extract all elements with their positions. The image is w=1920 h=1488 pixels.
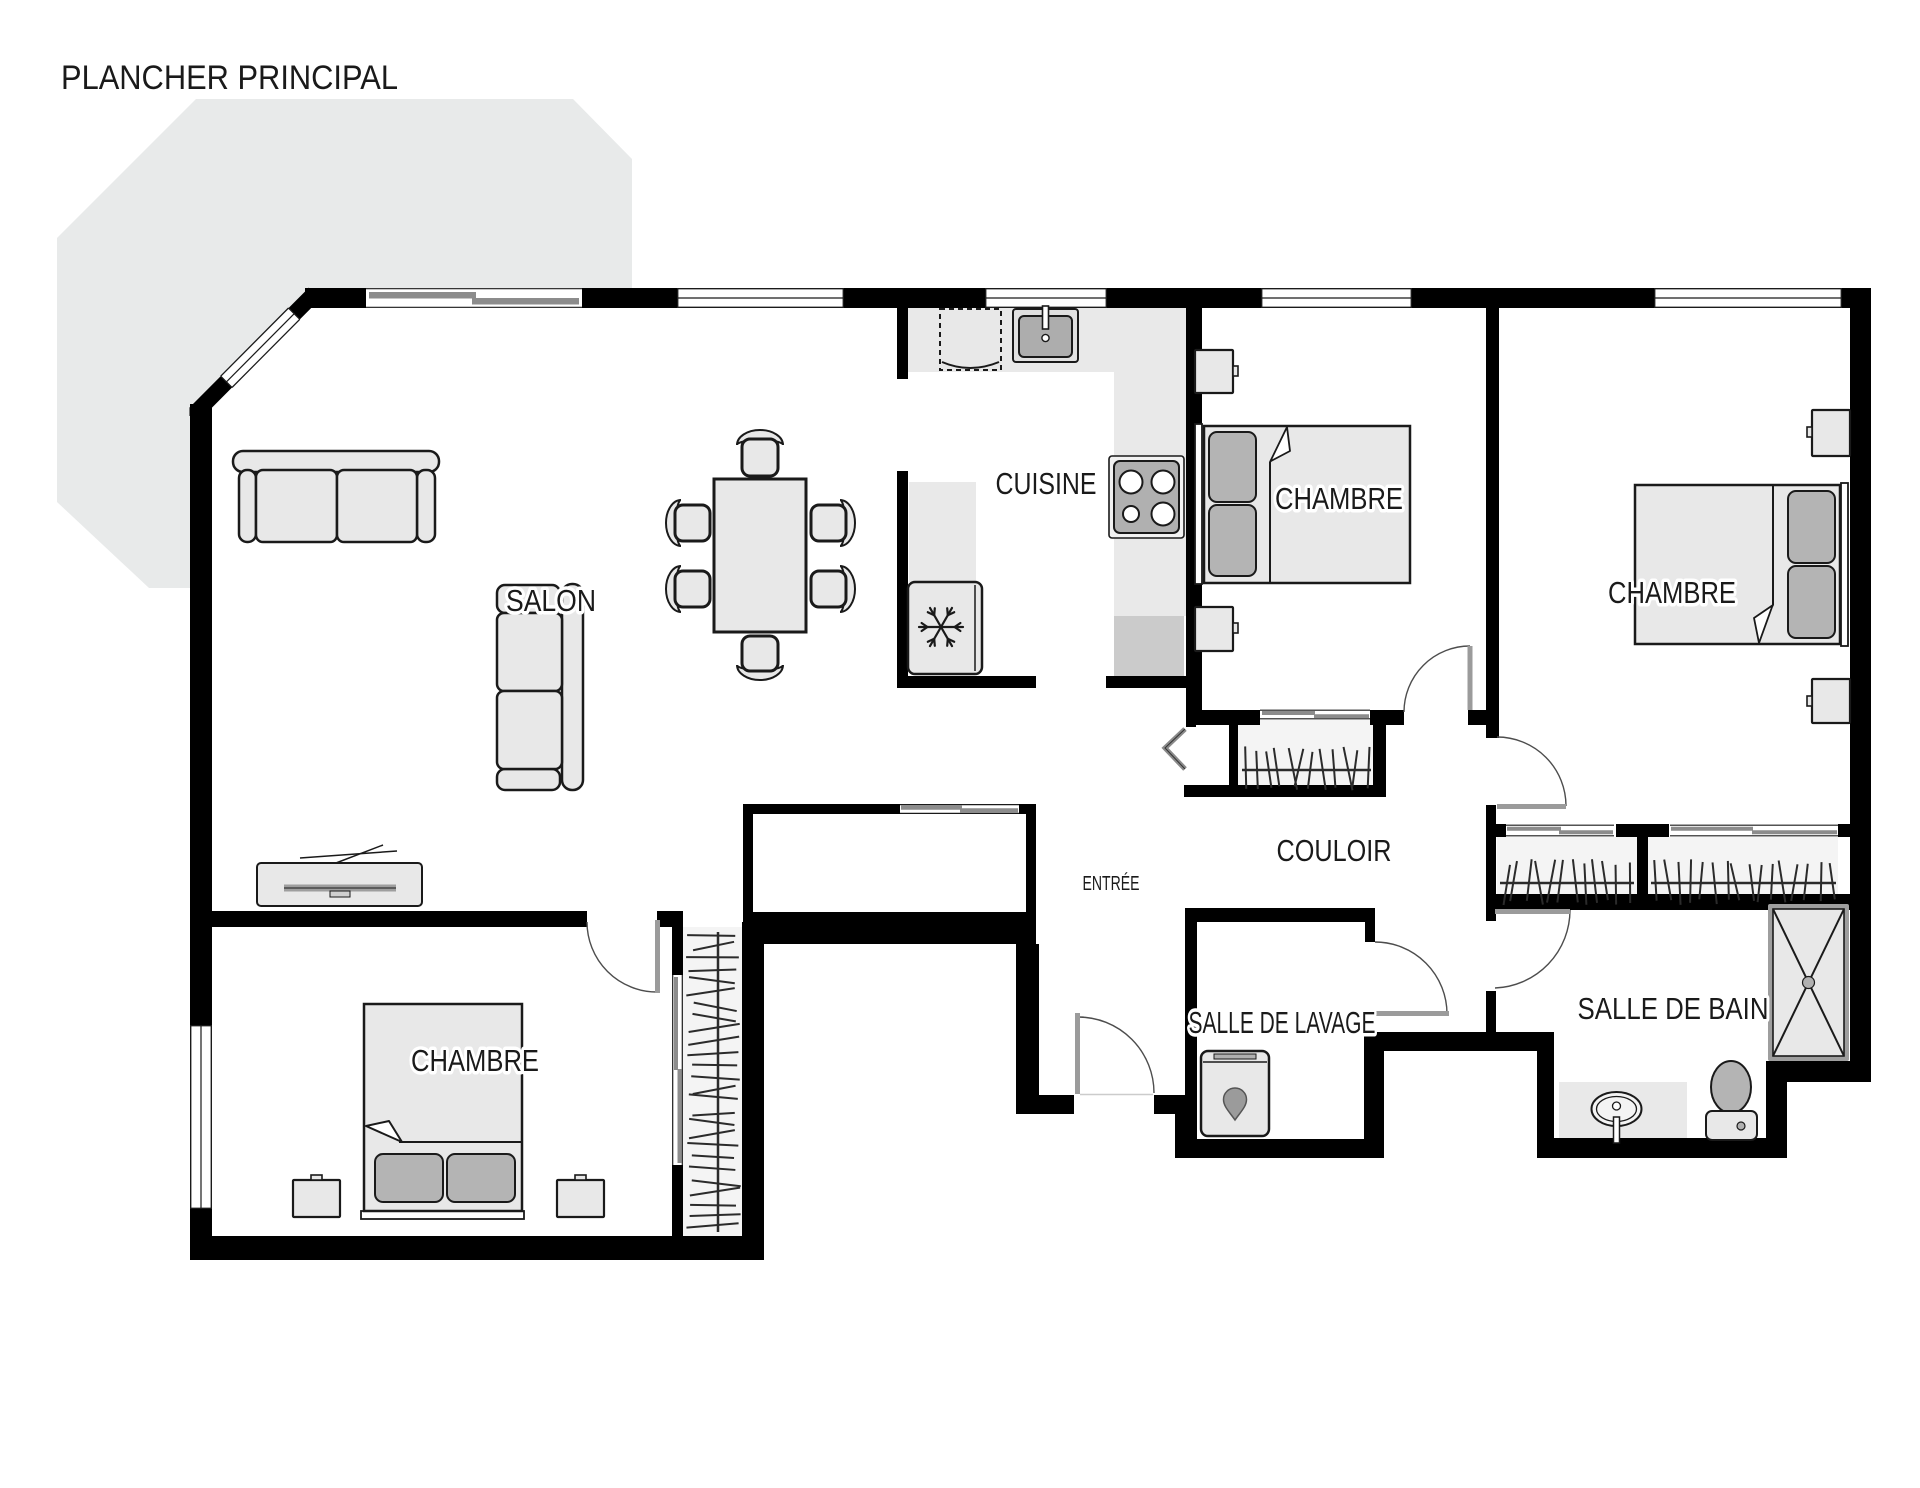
svg-text:CHAMBRE: CHAMBRE — [1275, 481, 1403, 516]
svg-text:PLANCHER PRINCIPAL: PLANCHER PRINCIPAL — [61, 59, 398, 97]
svg-text:SALLE DE LAVAGE: SALLE DE LAVAGE — [1189, 1005, 1376, 1040]
svg-text:SALON: SALON — [506, 583, 596, 618]
svg-text:SALLE DE BAIN: SALLE DE BAIN — [1578, 991, 1769, 1026]
svg-text:CHAMBRE: CHAMBRE — [1608, 575, 1736, 610]
svg-text:CHAMBRE: CHAMBRE — [411, 1043, 539, 1078]
svg-text:CUISINE: CUISINE — [996, 466, 1097, 501]
svg-text:ENTRÉE: ENTRÉE — [1083, 872, 1140, 895]
svg-text:COULOIR: COULOIR — [1277, 833, 1392, 868]
